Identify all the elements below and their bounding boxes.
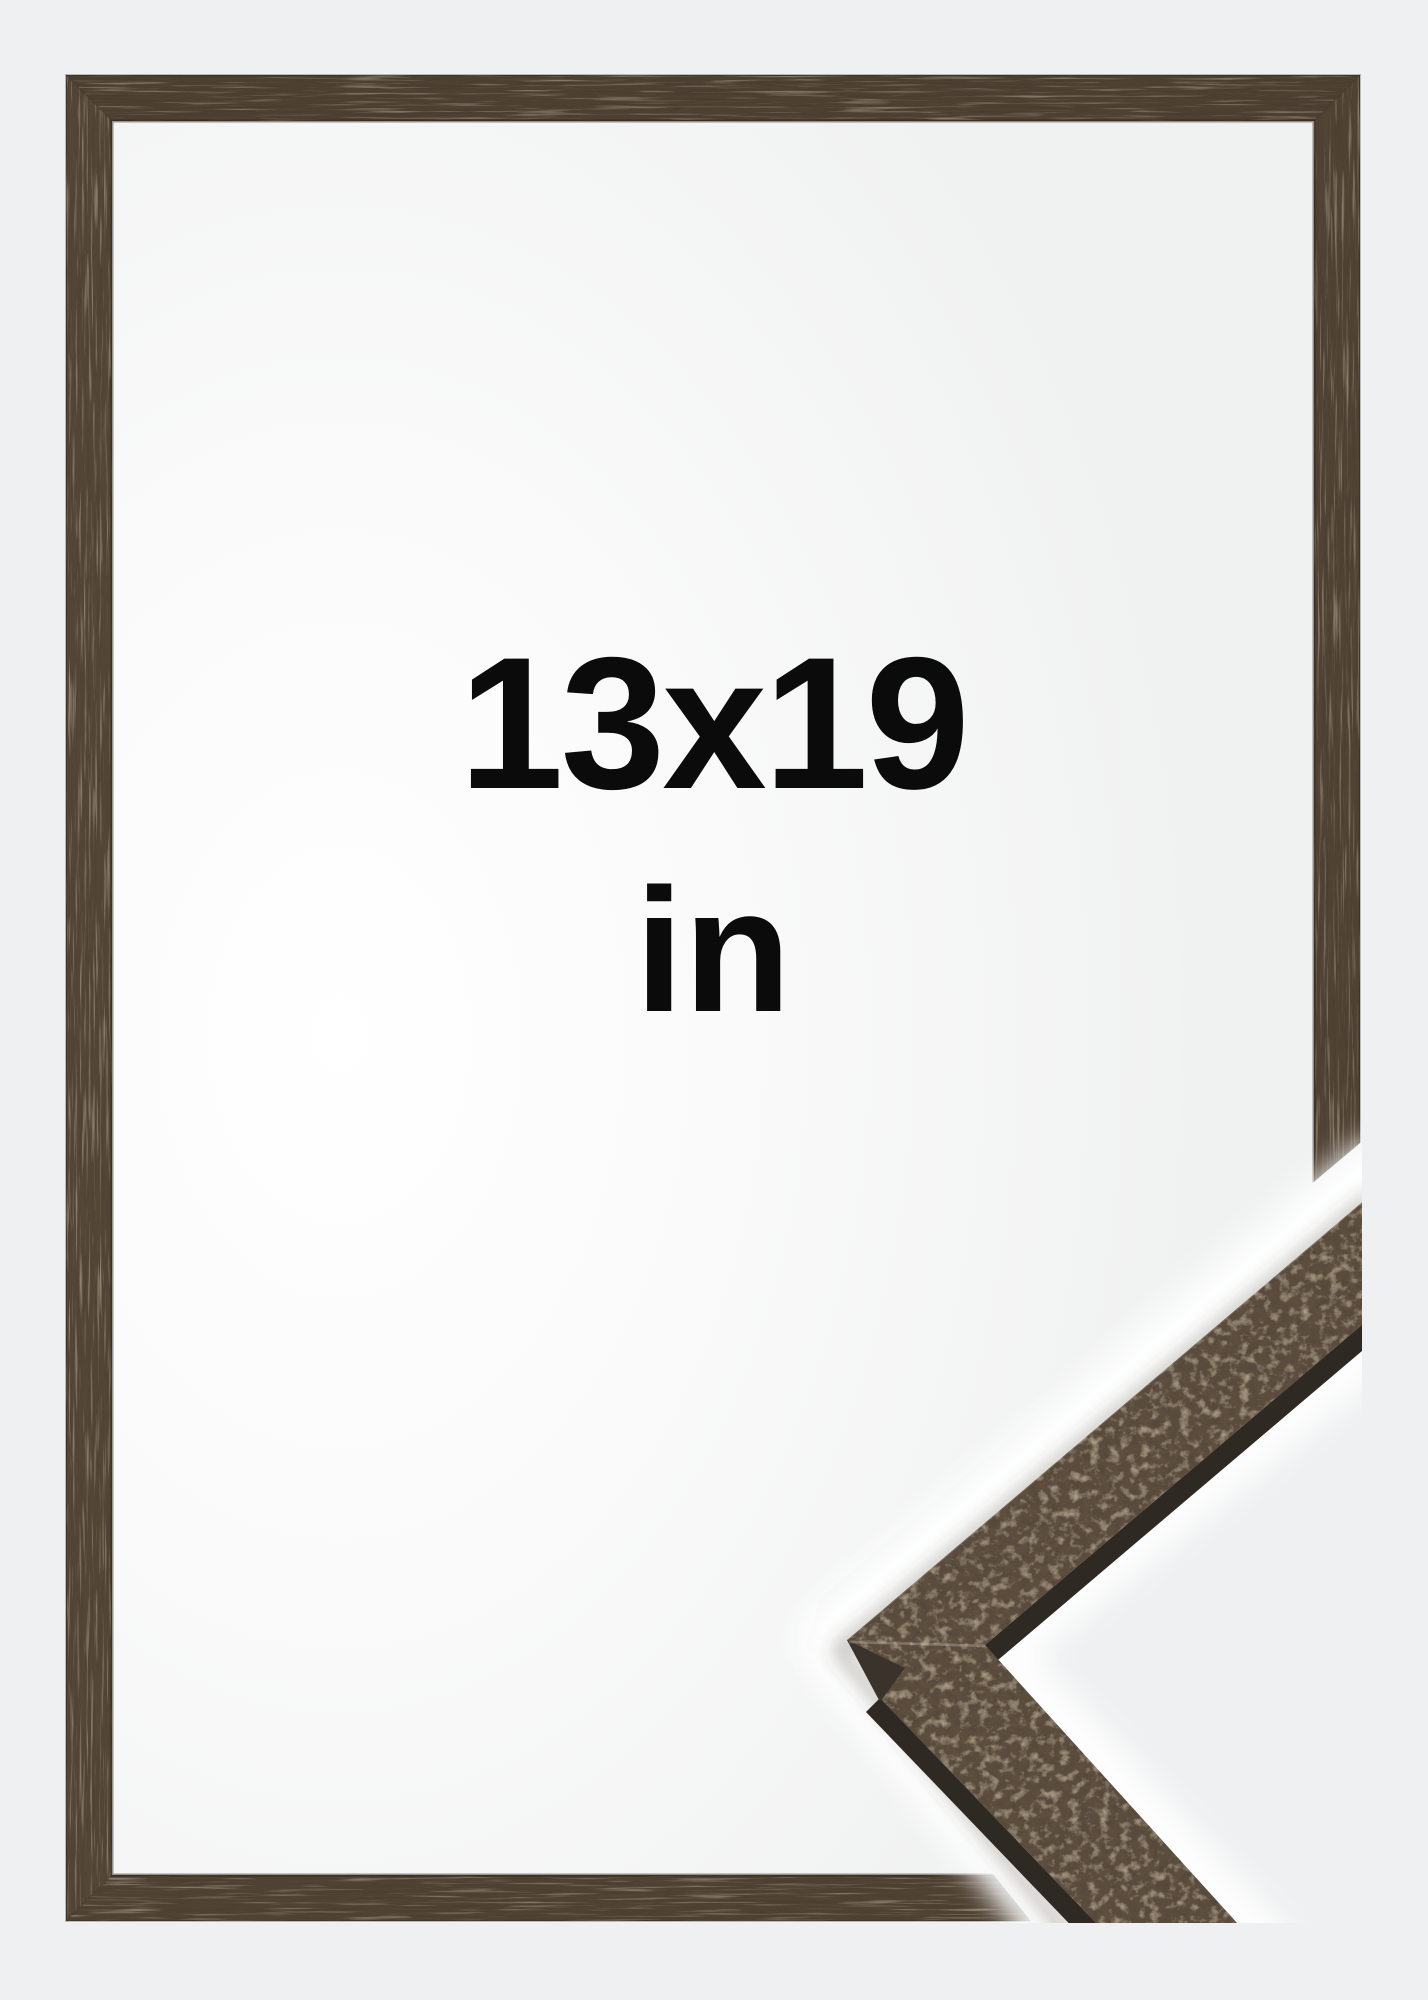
unit-label: in [66,863,1360,1039]
product-photo: 13x19 in [0,0,1428,2000]
top-rail-shade [66,75,1360,121]
size-label: 13x19 [66,629,1360,817]
